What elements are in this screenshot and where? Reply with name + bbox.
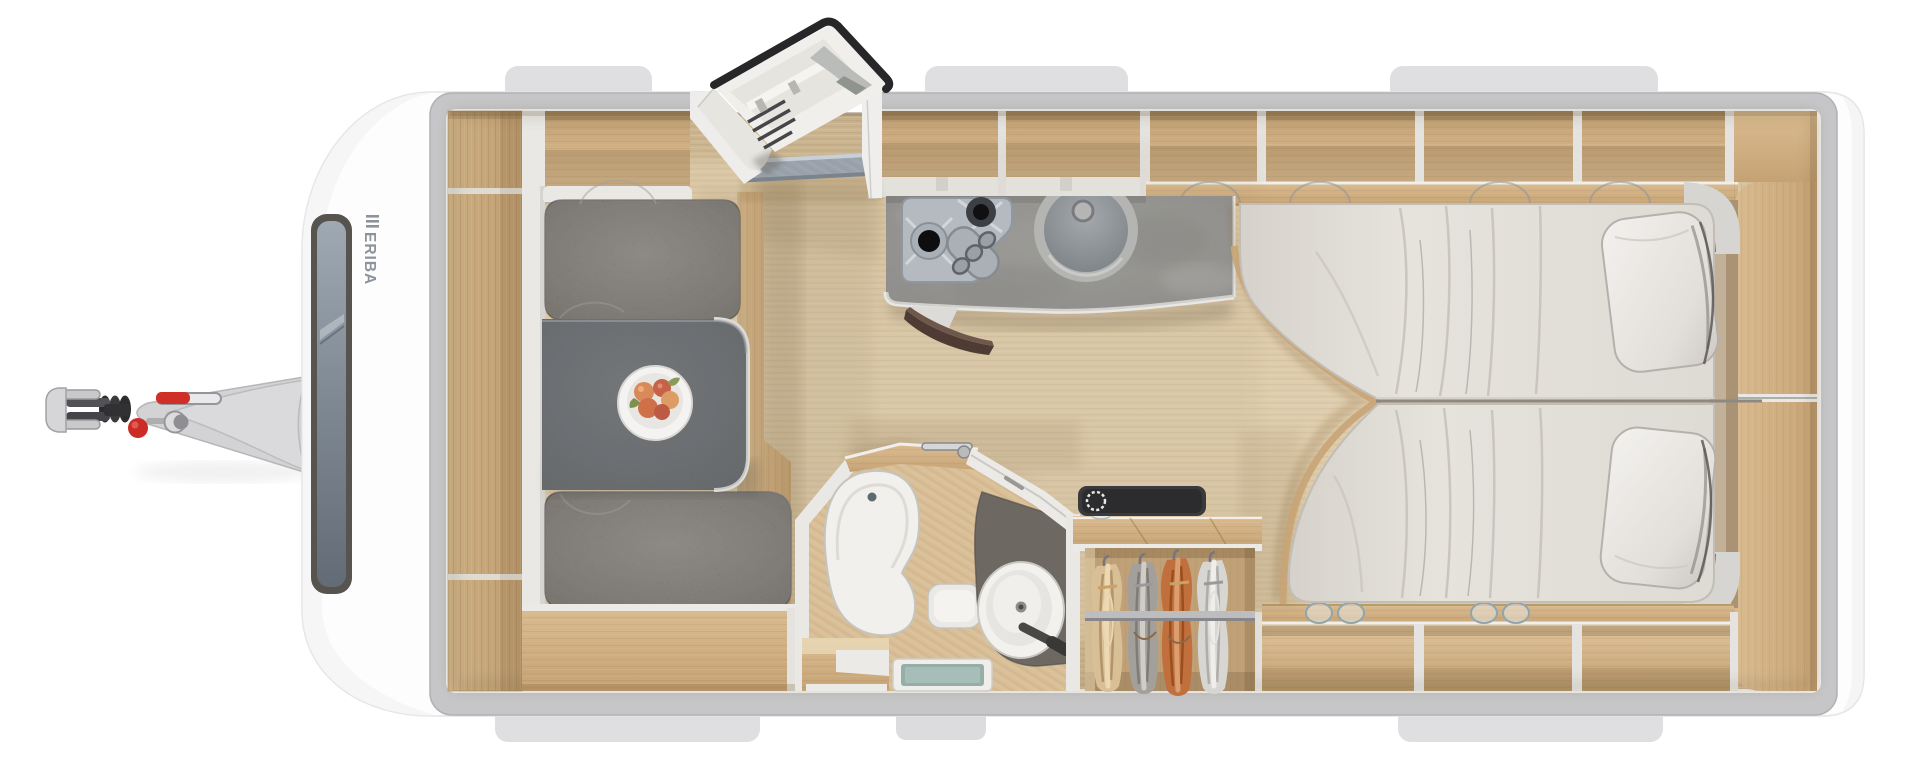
svg-text:ERIBA: ERIBA [361, 232, 378, 285]
